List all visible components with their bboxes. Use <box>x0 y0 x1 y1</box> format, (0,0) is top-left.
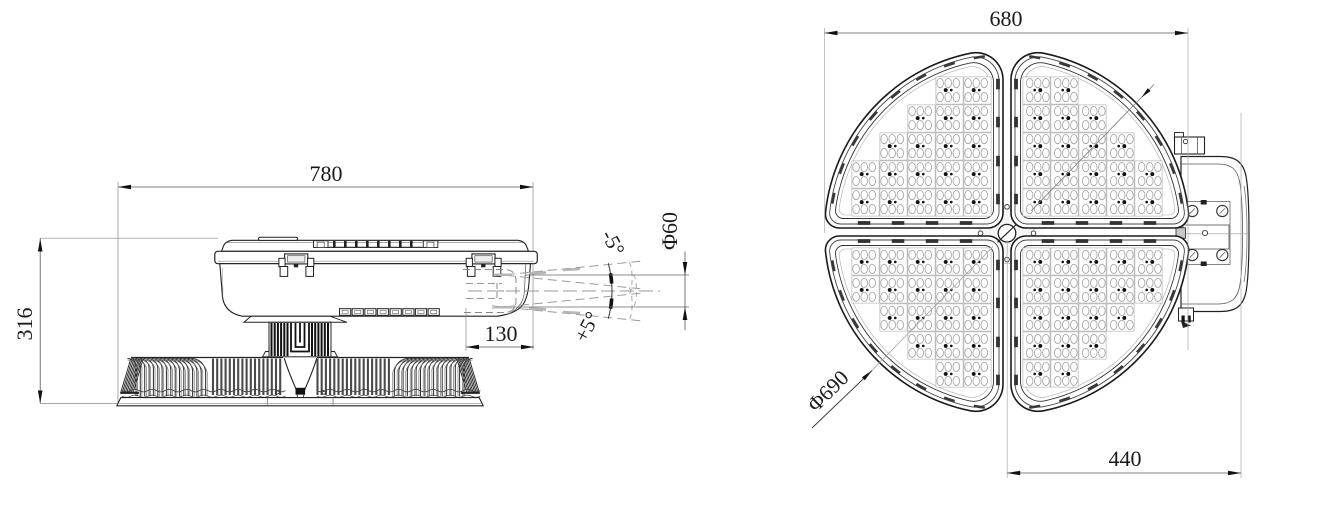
svg-text:780: 780 <box>310 161 343 186</box>
svg-text:316: 316 <box>12 308 37 341</box>
svg-text:Φ60: Φ60 <box>657 212 682 250</box>
svg-text:130: 130 <box>485 321 518 346</box>
svg-text:440: 440 <box>1109 446 1142 471</box>
svg-text:680: 680 <box>990 6 1023 31</box>
